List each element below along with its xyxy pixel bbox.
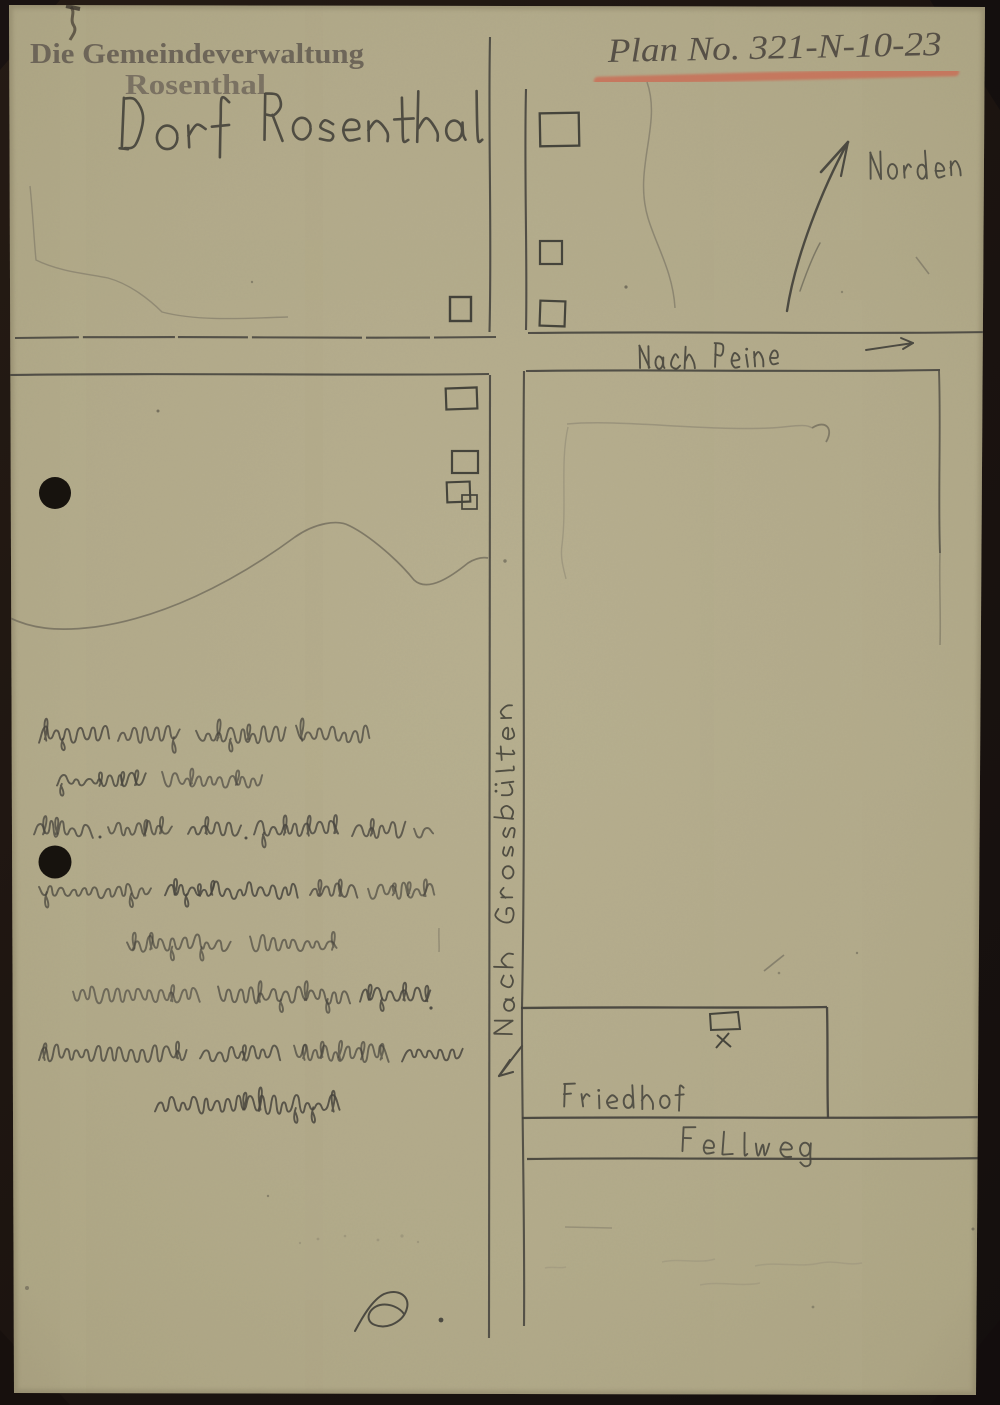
svg-text:Rosenthal: Rosenthal <box>125 70 266 101</box>
svg-text:Die Gemeindeverwaltung: Die Gemeindeverwaltung <box>30 38 365 70</box>
svg-text:Plan No. 321-N-10-23: Plan No. 321-N-10-23 <box>606 26 942 70</box>
